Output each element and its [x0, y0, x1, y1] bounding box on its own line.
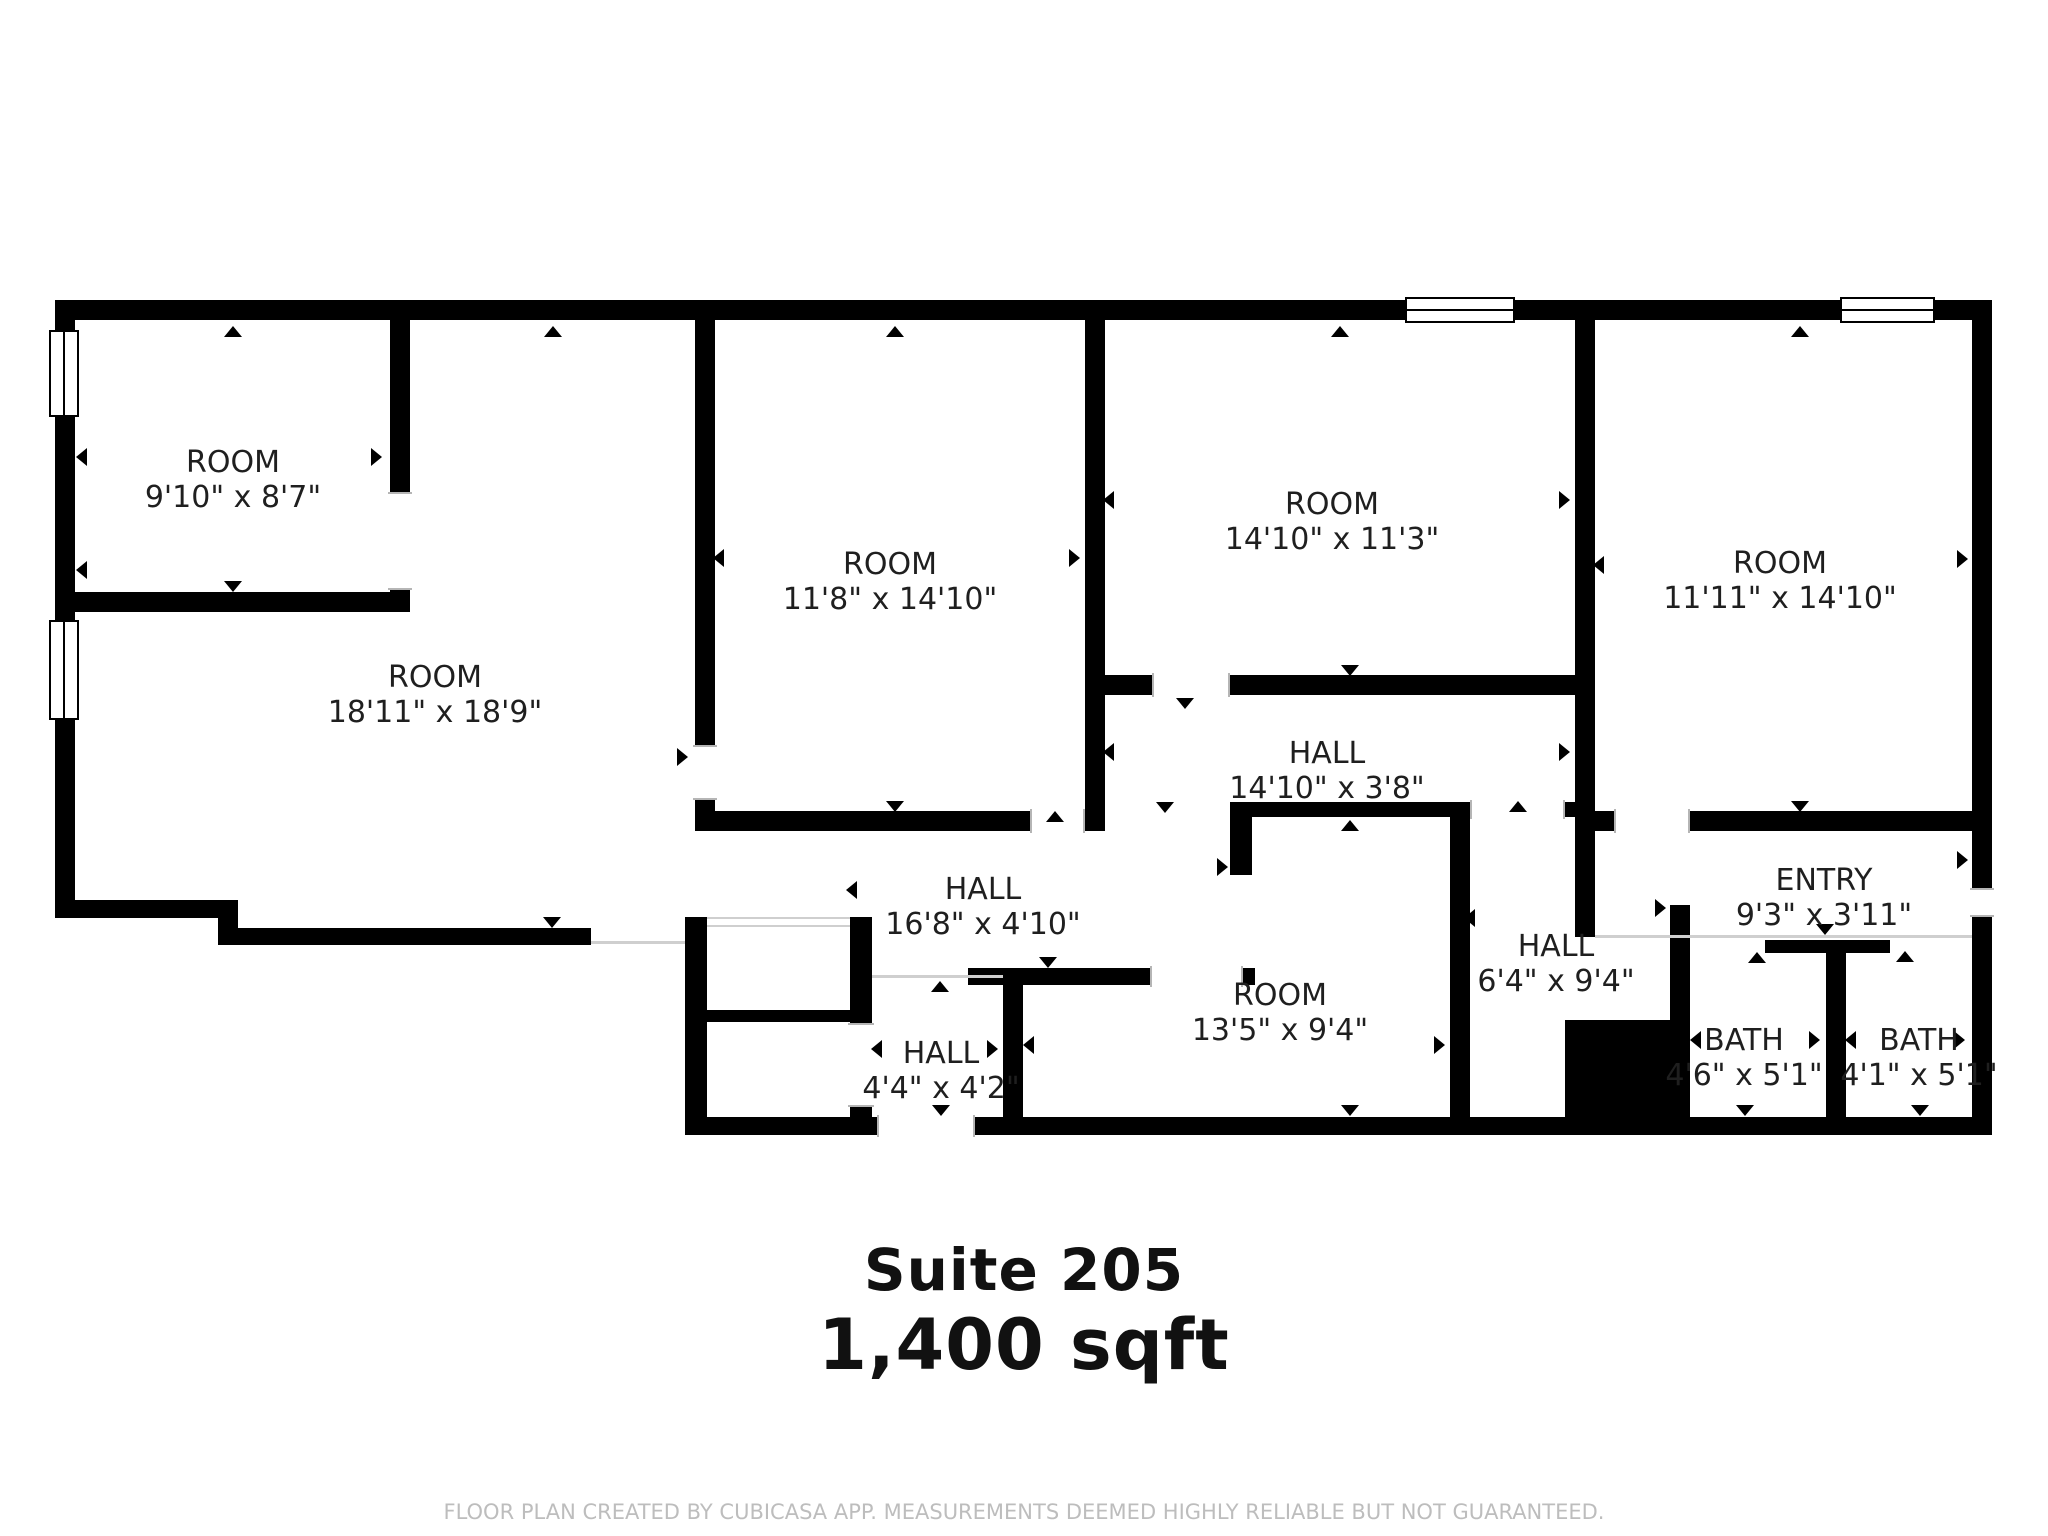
room-dimensions: 4'1" x 5'1" [1840, 1058, 1997, 1093]
wall-segment [850, 1107, 872, 1117]
room-label: HALL14'10" x 3'8" [1229, 736, 1424, 806]
door-opening [693, 745, 717, 800]
open-boundary-line [591, 941, 685, 944]
room-name: HALL [1229, 736, 1424, 771]
wall-segment [55, 592, 410, 612]
measure-arrow-icon [1069, 549, 1080, 567]
wall-segment [1085, 320, 1105, 831]
floor-plan-page: ROOM9'10" x 8'7"ROOM18'11" x 18'9"ROOM11… [0, 0, 2048, 1536]
measure-arrow-icon [931, 981, 949, 992]
wall-segment [850, 928, 872, 1023]
wall-segment [218, 928, 591, 945]
suite-area: 1,400 sqft [0, 1302, 2048, 1388]
room-label: BATH4'6" x 5'1" [1665, 1023, 1822, 1093]
room-dimensions: 18'11" x 18'9" [328, 695, 543, 730]
measure-arrow-icon [886, 326, 904, 337]
room-label: ROOM18'11" x 18'9" [328, 660, 543, 730]
room-dimensions: 14'10" x 11'3" [1225, 522, 1440, 557]
measure-arrow-icon [1509, 801, 1527, 812]
room-name: BATH [1840, 1023, 1997, 1058]
wall-segment [1765, 940, 1890, 953]
wall-segment [1105, 675, 1152, 695]
room-label: ROOM9'10" x 8'7" [145, 445, 321, 515]
measure-arrow-icon [224, 581, 242, 592]
wall-segment [1230, 802, 1252, 875]
wall-segment [695, 811, 1030, 831]
wall-segment [975, 1117, 1992, 1135]
measure-arrow-icon [224, 326, 242, 337]
window-icon [1840, 297, 1935, 323]
open-boundary-line [707, 917, 850, 919]
measure-arrow-icon [1957, 550, 1968, 568]
wall-segment [1690, 811, 1972, 831]
measure-arrow-icon [1103, 743, 1114, 761]
measure-arrow-icon [1341, 665, 1359, 676]
room-dimensions: 9'10" x 8'7" [145, 480, 321, 515]
measure-arrow-icon [1748, 952, 1766, 963]
measure-arrow-icon [1103, 491, 1114, 509]
room-dimensions: 4'6" x 5'1" [1665, 1058, 1822, 1093]
window-icon [49, 330, 79, 417]
measure-arrow-icon [886, 801, 904, 812]
room-label: ROOM13'5" x 9'4" [1192, 978, 1368, 1048]
wall-segment [695, 320, 715, 745]
room-name: ROOM [328, 660, 543, 695]
measure-arrow-icon [1791, 801, 1809, 812]
measure-arrow-icon [713, 549, 724, 567]
room-name: BATH [1665, 1023, 1822, 1058]
wall-segment [685, 917, 707, 1135]
room-dimensions: 9'3" x 3'11" [1736, 898, 1912, 933]
measure-arrow-icon [1434, 1036, 1445, 1054]
room-name: ROOM [1192, 978, 1368, 1013]
open-boundary-line [707, 925, 850, 927]
measure-arrow-icon [1559, 743, 1570, 761]
wall-segment [1450, 802, 1470, 1117]
room-label: ENTRY9'3" x 3'11" [1736, 863, 1912, 933]
wall-segment [1565, 802, 1575, 817]
room-name: ROOM [1663, 546, 1897, 581]
wall-segment [55, 900, 238, 918]
wall-segment [1575, 320, 1595, 937]
room-dimensions: 16'8" x 4'10" [885, 907, 1080, 942]
measure-arrow-icon [1791, 326, 1809, 337]
wall-segment [55, 300, 1992, 320]
door-opening [1152, 673, 1230, 697]
measure-arrow-icon [544, 326, 562, 337]
door-opening [1614, 809, 1690, 833]
measure-arrow-icon [1593, 556, 1604, 574]
measure-arrow-icon [1023, 1036, 1034, 1054]
open-boundary-line [1595, 935, 1972, 938]
room-name: ROOM [1225, 487, 1440, 522]
room-label: ROOM11'8" x 14'10" [783, 547, 998, 617]
measure-arrow-icon [1911, 1105, 1929, 1116]
measure-arrow-icon [677, 748, 688, 766]
measure-arrow-icon [1655, 899, 1666, 917]
wall-segment [685, 1117, 877, 1135]
measure-arrow-icon [1217, 858, 1228, 876]
measure-arrow-icon [1039, 957, 1057, 968]
open-boundary-line [872, 975, 1003, 978]
measure-arrow-icon [846, 881, 857, 899]
room-name: HALL [1477, 929, 1634, 964]
door-opening [388, 492, 412, 590]
room-dimensions: 4'4" x 4'2" [862, 1071, 1019, 1106]
measure-arrow-icon [1896, 951, 1914, 962]
measure-arrow-icon [1046, 811, 1064, 822]
door-opening [877, 1115, 975, 1137]
door-opening [1970, 888, 1994, 917]
room-label: HALL6'4" x 9'4" [1477, 929, 1634, 999]
wall-segment [390, 320, 410, 492]
solid-block [1565, 1020, 1673, 1125]
window-icon [1405, 297, 1515, 323]
suite-title: Suite 205 [0, 1238, 2048, 1302]
room-dimensions: 6'4" x 9'4" [1477, 964, 1634, 999]
room-name: HALL [885, 872, 1080, 907]
wall-segment [1972, 300, 1992, 888]
measure-arrow-icon [1736, 1105, 1754, 1116]
room-name: ROOM [145, 445, 321, 480]
measure-arrow-icon [1156, 802, 1174, 813]
room-dimensions: 11'11" x 14'10" [1663, 581, 1897, 616]
room-dimensions: 14'10" x 3'8" [1229, 771, 1424, 806]
measure-arrow-icon [1464, 909, 1475, 927]
measure-arrow-icon [76, 561, 87, 579]
wall-segment [1595, 811, 1614, 831]
measure-arrow-icon [1176, 698, 1194, 709]
measure-arrow-icon [1559, 491, 1570, 509]
wall-segment [1230, 675, 1575, 695]
room-label: HALL4'4" x 4'2" [862, 1036, 1019, 1106]
disclaimer-text: FLOOR PLAN CREATED BY CUBICASA APP. MEAS… [0, 1500, 2048, 1524]
room-name: ENTRY [1736, 863, 1912, 898]
wall-segment [685, 1010, 872, 1022]
room-dimensions: 11'8" x 14'10" [783, 582, 998, 617]
room-label: HALL16'8" x 4'10" [885, 872, 1080, 942]
measure-arrow-icon [371, 448, 382, 466]
measure-arrow-icon [1341, 820, 1359, 831]
room-name: HALL [862, 1036, 1019, 1071]
room-label: BATH4'1" x 5'1" [1840, 1023, 1997, 1093]
room-label: ROOM14'10" x 11'3" [1225, 487, 1440, 557]
room-dimensions: 13'5" x 9'4" [1192, 1013, 1368, 1048]
wall-segment [850, 917, 872, 928]
measure-arrow-icon [76, 448, 87, 466]
title-block: Suite 205 1,400 sqft [0, 1238, 2048, 1388]
measure-arrow-icon [1331, 326, 1349, 337]
room-name: ROOM [783, 547, 998, 582]
room-label: ROOM11'11" x 14'10" [1663, 546, 1897, 616]
window-icon [49, 620, 79, 720]
measure-arrow-icon [932, 1105, 950, 1116]
measure-arrow-icon [543, 917, 561, 928]
measure-arrow-icon [1341, 1105, 1359, 1116]
measure-arrow-icon [1957, 851, 1968, 869]
